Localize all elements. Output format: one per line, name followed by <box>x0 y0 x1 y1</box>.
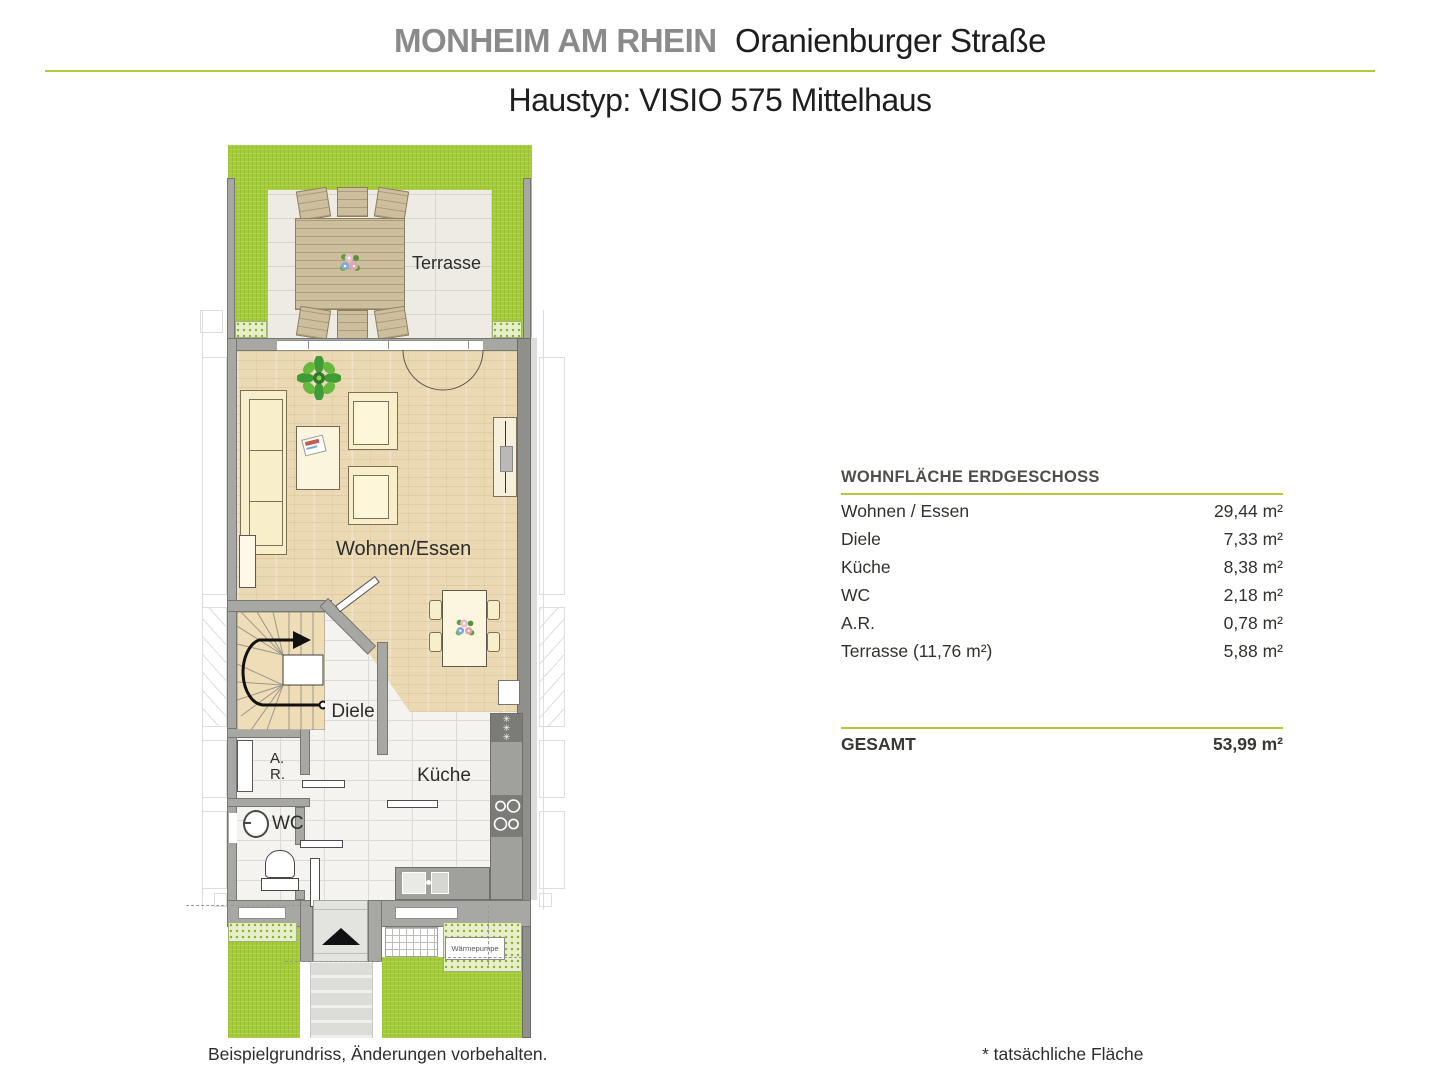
wc-label: WC <box>272 813 304 835</box>
neighbor-stairs-right <box>539 607 565 727</box>
wall-wc-right-lower <box>295 890 305 900</box>
area-table: WOHNFLÄCHE ERDGESCHOSS Wohnen / Essen 29… <box>841 468 1283 759</box>
terrace-wall-left <box>227 178 235 340</box>
drainage-grate <box>385 927 438 957</box>
wc-sink <box>243 810 269 838</box>
gravel-terrace-right <box>492 321 522 338</box>
wall-niche <box>498 680 520 705</box>
kitchen-window <box>395 907 458 919</box>
entrance-arrow-icon <box>322 928 360 945</box>
neighbor-stairs-left <box>202 607 227 727</box>
porch-wall-left <box>300 900 313 962</box>
neighbor-room-left <box>202 357 227 595</box>
table-row: Küche 8,38 m² <box>841 553 1283 581</box>
dining-chair <box>487 632 500 652</box>
neighbor-room-right <box>539 740 565 798</box>
overhang-dash-porch <box>285 961 382 962</box>
storage-label-line1: A. <box>270 750 284 767</box>
terrace-chair <box>374 306 409 340</box>
table-row: Wohnen / Essen 29,44 m² <box>841 497 1283 525</box>
footnote-left: Beispielgrundriss, Änderungen vorbehalte… <box>208 1044 548 1065</box>
row-label: A.R. <box>841 613 875 634</box>
row-value: 5,88 m² <box>1224 641 1283 662</box>
row-label: Diele <box>841 529 881 550</box>
total-label: GESAMT <box>841 734 916 755</box>
row-value: 29,44 m² <box>1214 501 1283 522</box>
window-mullion <box>388 340 389 349</box>
house-type-subtitle: Haustyp: VISIO 575 Mittelhaus <box>0 82 1440 119</box>
heat-pump-label: Wärmepumpe <box>451 944 498 953</box>
storage-door-leaf <box>302 780 345 788</box>
dining-chair <box>487 600 500 620</box>
area-table-rows: Wohnen / Essen 29,44 m² Diele 7,33 m² Kü… <box>841 497 1283 665</box>
neighbor-room-left <box>200 310 223 333</box>
row-value: 0,78 m² <box>1224 613 1283 634</box>
storage-label-line2: R. <box>270 766 285 783</box>
table-row: WC 2,18 m² <box>841 581 1283 609</box>
row-value: 2,18 m² <box>1224 585 1283 606</box>
magazines <box>301 435 326 457</box>
fridge: ✳✳✳ <box>491 714 522 742</box>
overhang-dash-left <box>186 905 310 906</box>
wall-diele-kueche <box>377 642 388 755</box>
total-value: 53,99 m² <box>1213 734 1283 755</box>
window-mullion <box>308 340 309 349</box>
neighbor-wall-strip-right <box>531 338 537 900</box>
wc-toilet-bowl <box>265 850 295 878</box>
coffee-table <box>296 426 340 490</box>
row-label: WC <box>841 585 870 606</box>
table-row: Terrasse (11,76 m²) 5,88 m² <box>841 637 1283 665</box>
neighbor-room-right <box>539 893 552 907</box>
living-room-label: Wohnen/Essen <box>336 538 466 561</box>
row-value: 8,38 m² <box>1224 557 1283 578</box>
kitchen-label: Küche <box>413 765 475 787</box>
terrace-door-swing <box>393 350 493 396</box>
page-title: MONHEIM AM RHEIN Oranienburger Straße <box>0 22 1440 60</box>
floor-plan: Terrasse <box>186 145 570 1040</box>
dining-chair <box>429 632 442 652</box>
wall-shelf <box>239 535 256 588</box>
terrace-chair <box>296 187 331 221</box>
garden-path <box>310 962 373 1038</box>
footnote-right: * tatsächliche Fläche <box>982 1044 1143 1065</box>
dining-chair <box>429 600 442 620</box>
terrace-wall-right <box>523 178 531 340</box>
plant-icon <box>297 356 341 400</box>
wc-window-left <box>229 813 237 843</box>
neighbor-room-left <box>202 740 227 798</box>
row-label: Wohnen / Essen <box>841 501 969 522</box>
sideboard-tv <box>493 417 517 497</box>
porch-wall-right <box>368 900 382 962</box>
table-row: A.R. 0,78 m² <box>841 609 1283 637</box>
gravel-strip-left <box>228 922 297 942</box>
staircase <box>237 612 325 730</box>
kitchen-sink-drainer <box>431 872 449 894</box>
row-value: 7,33 m² <box>1224 529 1283 550</box>
terrace-chair <box>337 310 368 340</box>
sofa <box>240 390 287 555</box>
area-table-divider-top <box>841 493 1283 495</box>
header-divider <box>45 70 1375 72</box>
neighbor-room-right <box>539 357 565 595</box>
overhang-dash-right <box>443 957 522 958</box>
wc-window <box>238 907 286 919</box>
storage-cupboard <box>237 740 253 792</box>
neighbor-room-left <box>202 811 227 889</box>
page: MONHEIM AM RHEIN Oranienburger Straße Ha… <box>0 0 1440 1080</box>
terrace-chair <box>337 187 368 217</box>
kitchen-faucet <box>426 880 431 885</box>
cooktop-burners-icon <box>491 795 522 837</box>
kitchen-door-leaf <box>387 800 438 808</box>
terrace-label: Terrasse <box>412 253 481 274</box>
window-mullion <box>468 340 469 349</box>
wc-toilet-tank <box>261 878 299 891</box>
table-spacer <box>841 665 1283 721</box>
wall-ar-right <box>300 728 310 775</box>
flower-centerpiece-icon <box>336 249 364 277</box>
table-row: Diele 7,33 m² <box>841 525 1283 553</box>
terrace-chair <box>374 187 409 221</box>
wc-door-leaf <box>300 840 343 848</box>
area-table-title: WOHNFLÄCHE ERDGESCHOSS <box>841 468 1283 487</box>
flower-centerpiece-icon <box>452 615 478 641</box>
armchair <box>348 392 398 450</box>
overhang-dash-vertical <box>488 905 489 965</box>
wall-stairs-top <box>227 600 332 612</box>
armchair <box>348 466 398 525</box>
gravel-terrace-left <box>235 321 267 338</box>
kitchen-sink-bowl <box>402 872 426 894</box>
hallway-label: Diele <box>323 701 383 723</box>
terrace-chair <box>296 306 331 340</box>
neighbor-room-right <box>539 811 565 889</box>
total-row: GESAMT 53,99 m² <box>841 729 1283 759</box>
project-location: MONHEIM AM RHEIN <box>394 22 717 59</box>
row-label: Terrasse (11,76 m²) <box>841 641 992 662</box>
row-label: Küche <box>841 557 891 578</box>
wall-ar-wc <box>227 798 310 807</box>
project-street: Oranienburger Straße <box>735 22 1046 59</box>
